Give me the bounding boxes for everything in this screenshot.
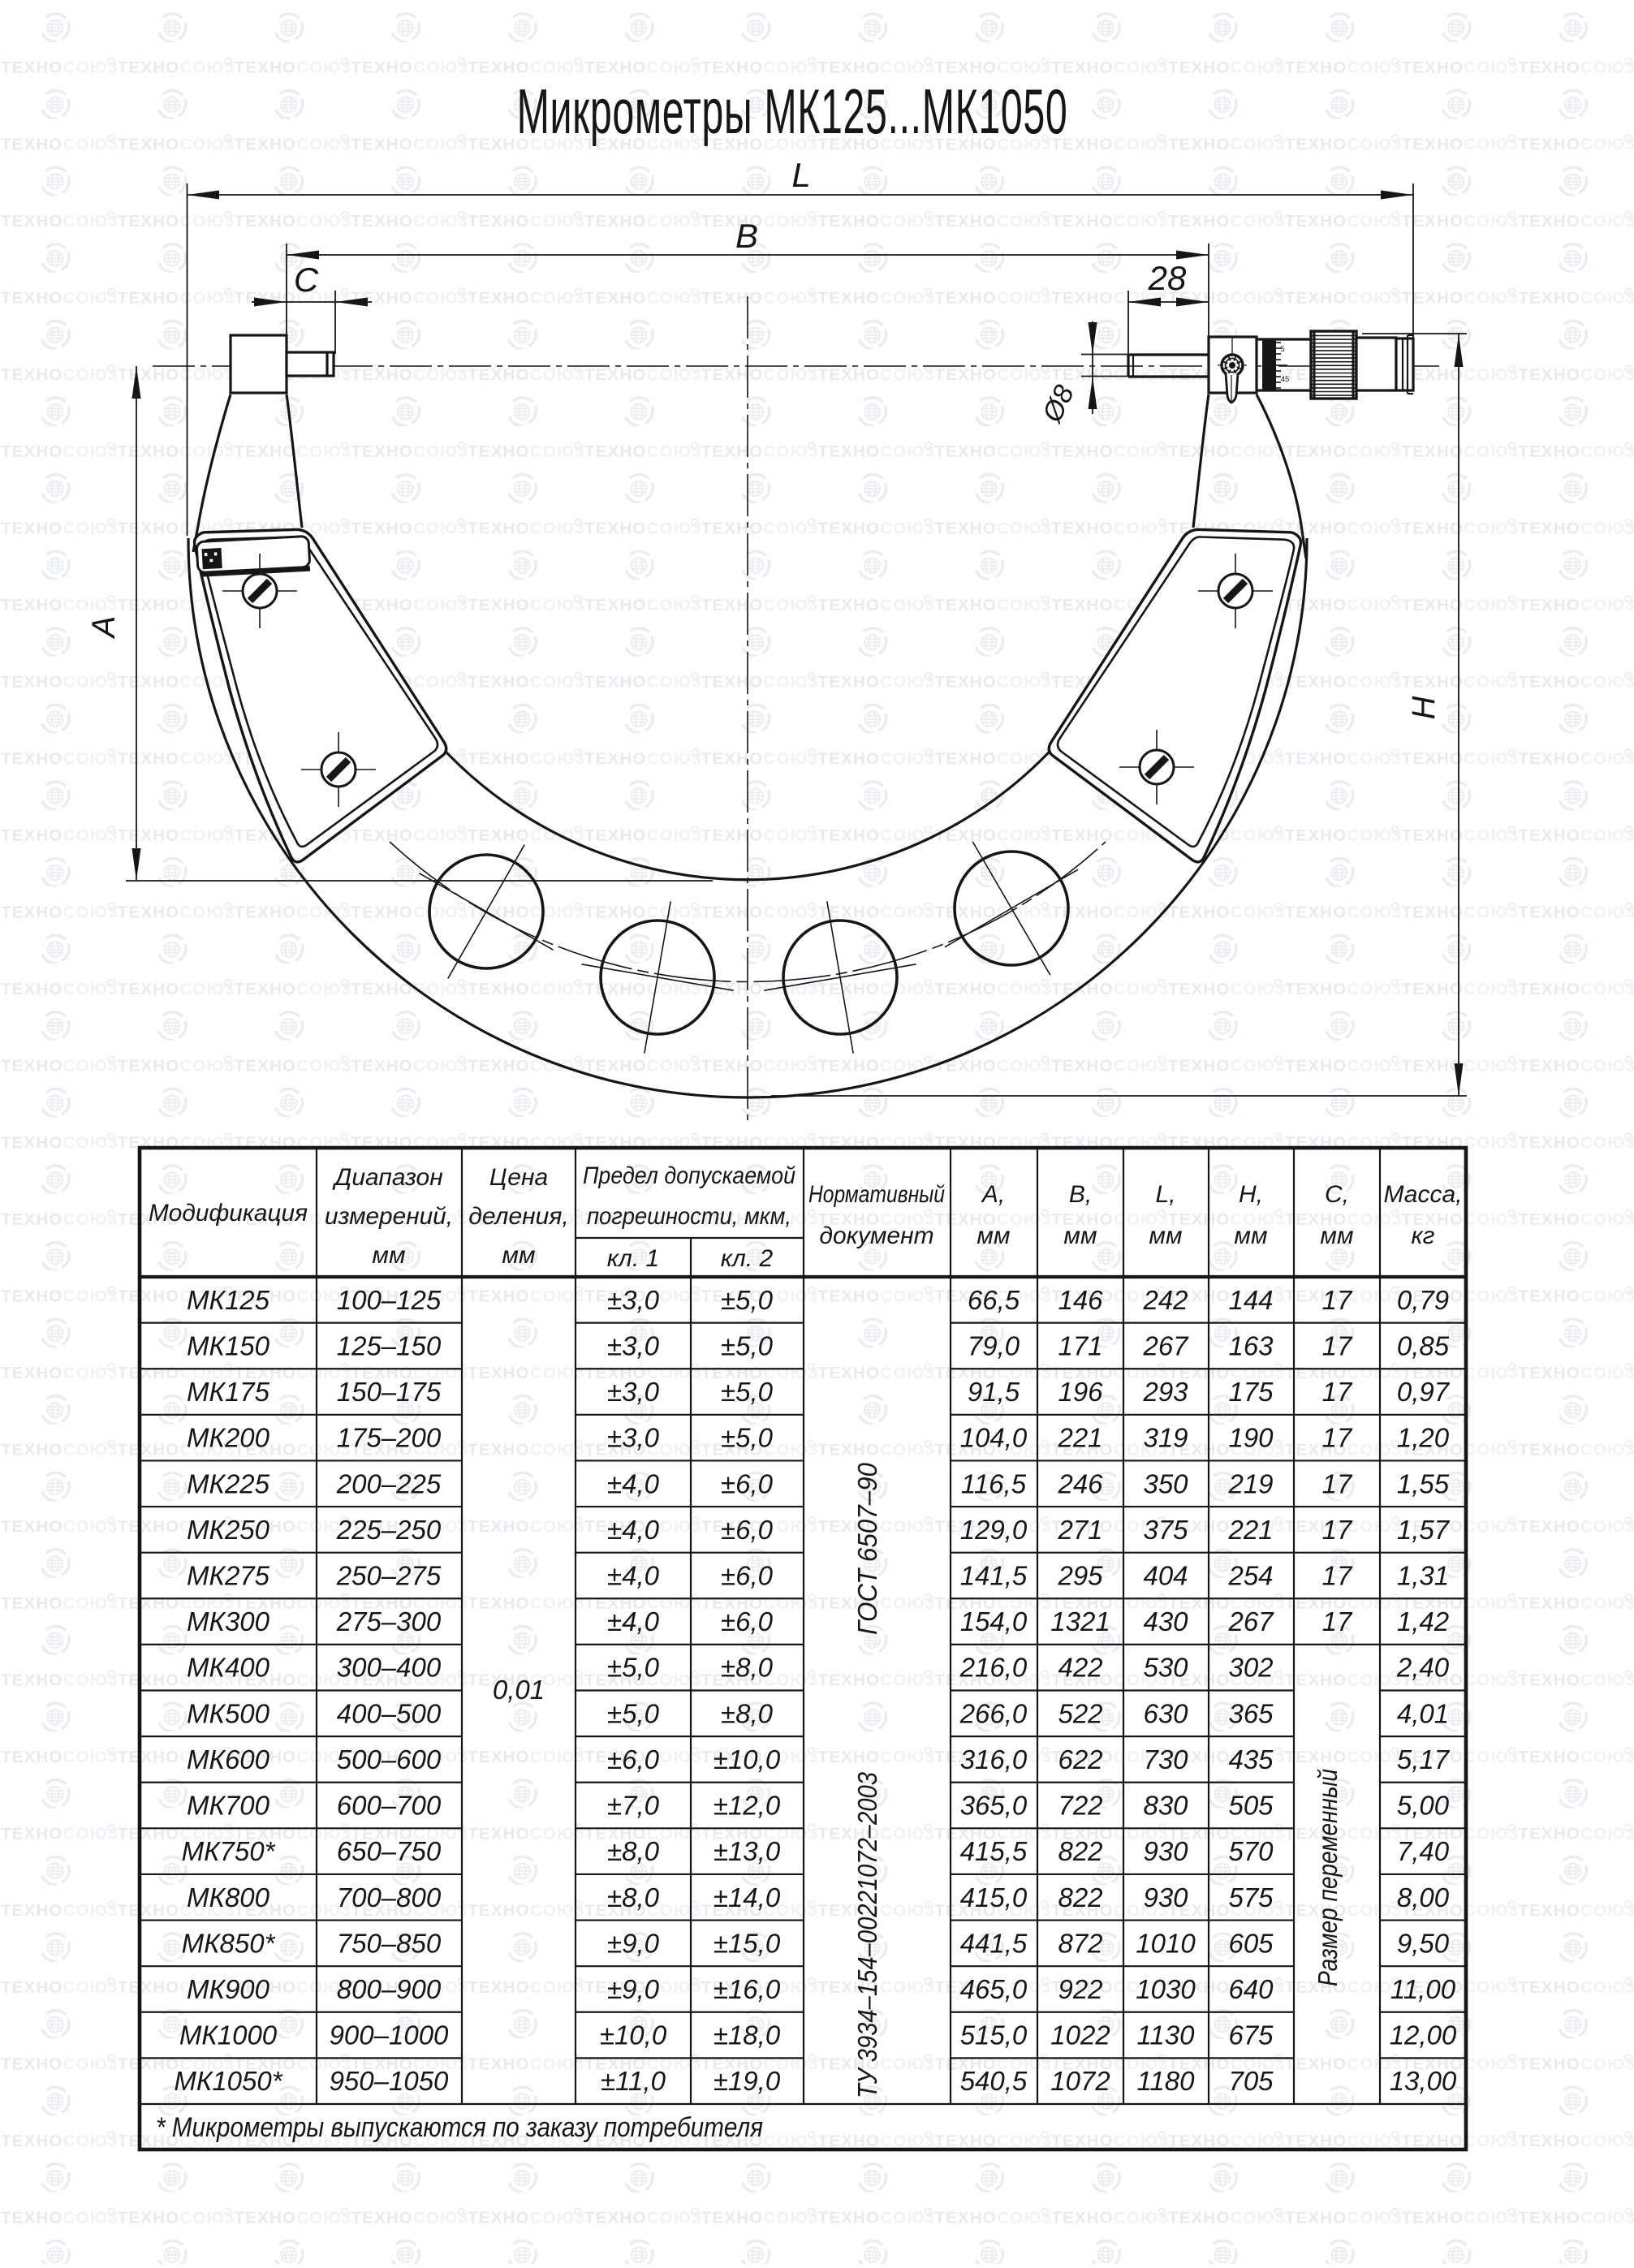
svg-text:ТУ 3934–154–00221072–2003: ТУ 3934–154–00221072–2003: [852, 1771, 882, 2098]
svg-text:293: 293: [1142, 1377, 1188, 1407]
svg-text:мм: мм: [1063, 1222, 1097, 1249]
svg-text:МК1000: МК1000: [179, 2020, 278, 2050]
svg-text:750–850: 750–850: [337, 1928, 442, 1958]
svg-text:530: 530: [1143, 1653, 1188, 1683]
svg-text:17: 17: [1322, 1515, 1353, 1545]
svg-text:±7,0: ±7,0: [607, 1791, 660, 1821]
svg-text:±3,0: ±3,0: [607, 1285, 660, 1315]
svg-text:±9,0: ±9,0: [607, 1974, 660, 2004]
svg-text:1072: 1072: [1050, 2066, 1110, 2096]
svg-text:575: 575: [1228, 1882, 1274, 1912]
svg-text:МК250: МК250: [187, 1515, 270, 1545]
svg-text:254: 254: [1227, 1560, 1273, 1590]
svg-text:1180: 1180: [1137, 2066, 1196, 2096]
svg-text:225–250: 225–250: [336, 1515, 442, 1545]
svg-text:144: 144: [1228, 1285, 1273, 1315]
svg-text:кг: кг: [1412, 1222, 1435, 1249]
svg-text:±3,0: ±3,0: [607, 1423, 660, 1453]
svg-text:МК275: МК275: [187, 1560, 270, 1590]
svg-text:мм: мм: [372, 1242, 405, 1269]
svg-text:28: 28: [1148, 259, 1187, 297]
svg-text:800–900: 800–900: [337, 1974, 442, 2004]
svg-text:Модификация: Модификация: [149, 1200, 308, 1227]
svg-text:МК400: МК400: [187, 1653, 270, 1683]
svg-text:415,5: 415,5: [960, 1836, 1028, 1866]
svg-text:±12,0: ±12,0: [714, 1791, 781, 1821]
svg-text:±9,0: ±9,0: [607, 1928, 660, 1958]
svg-text:мм: мм: [1149, 1222, 1182, 1249]
svg-text:640: 640: [1228, 1974, 1274, 2004]
svg-text:±3,0: ±3,0: [607, 1330, 660, 1360]
svg-text:630: 630: [1143, 1698, 1188, 1728]
svg-text:кл. 2: кл. 2: [721, 1245, 774, 1272]
svg-text:A: A: [86, 616, 122, 640]
svg-text:±5,0: ±5,0: [721, 1377, 774, 1407]
svg-text:1321: 1321: [1050, 1606, 1110, 1636]
svg-text:±5,0: ±5,0: [607, 1698, 660, 1728]
svg-text:±11,0: ±11,0: [601, 2066, 666, 2096]
svg-text:242: 242: [1142, 1285, 1188, 1315]
svg-text:17: 17: [1322, 1377, 1353, 1407]
svg-text:930: 930: [1143, 1836, 1188, 1866]
svg-text:441,5: 441,5: [960, 1928, 1028, 1958]
svg-text:605: 605: [1228, 1928, 1274, 1958]
svg-text:1130: 1130: [1137, 2020, 1196, 2050]
svg-text:1030: 1030: [1136, 1974, 1196, 2004]
svg-text:830: 830: [1143, 1791, 1188, 1821]
svg-text:МК900: МК900: [187, 1974, 270, 2004]
svg-text:5: 5: [1280, 345, 1284, 354]
svg-text:7,40: 7,40: [1397, 1836, 1450, 1866]
svg-text:930: 930: [1143, 1882, 1188, 1912]
svg-text:±4,0: ±4,0: [607, 1560, 660, 1590]
svg-text:430: 430: [1143, 1606, 1188, 1636]
svg-text:±8,0: ±8,0: [721, 1698, 774, 1728]
svg-text:404: 404: [1143, 1560, 1188, 1590]
svg-text:±8,0: ±8,0: [721, 1653, 774, 1683]
svg-text:600–700: 600–700: [337, 1791, 442, 1821]
svg-text:219: 219: [1227, 1468, 1273, 1498]
svg-text:400–500: 400–500: [337, 1698, 442, 1728]
svg-text:Микрометры МК125...МК1050: Микрометры МК125...МК1050: [517, 75, 1068, 147]
svg-text:12,00: 12,00: [1390, 2020, 1457, 2050]
svg-text:МК600: МК600: [187, 1744, 270, 1774]
svg-text:104,0: 104,0: [960, 1423, 1028, 1453]
svg-text:±15,0: ±15,0: [714, 1928, 781, 1958]
svg-text:B: B: [735, 217, 758, 255]
svg-text:МК175: МК175: [187, 1377, 270, 1407]
svg-text:±4,0: ±4,0: [607, 1606, 660, 1636]
svg-text:Масса,: Масса,: [1383, 1181, 1462, 1208]
svg-text:H: H: [1406, 696, 1442, 719]
svg-text:МК150: МК150: [187, 1330, 270, 1360]
svg-text:±5,0: ±5,0: [721, 1423, 774, 1453]
svg-text:465,0: 465,0: [960, 1974, 1028, 2004]
svg-text:1010: 1010: [1136, 1928, 1196, 1958]
svg-text:422: 422: [1058, 1653, 1102, 1683]
svg-text:650–750: 650–750: [337, 1836, 442, 1866]
svg-text:872: 872: [1058, 1928, 1102, 1958]
svg-text:L,: L,: [1155, 1181, 1175, 1208]
svg-text:129,0: 129,0: [960, 1515, 1028, 1545]
svg-text:МК1050*: МК1050*: [174, 2066, 282, 2096]
svg-text:±18,0: ±18,0: [714, 2020, 781, 2050]
svg-text:8,00: 8,00: [1397, 1882, 1450, 1912]
svg-text:мм: мм: [1234, 1222, 1267, 1249]
svg-text:1,55: 1,55: [1397, 1468, 1450, 1498]
svg-text:100–125: 100–125: [337, 1285, 442, 1315]
svg-text:4,01: 4,01: [1397, 1698, 1449, 1728]
svg-text:0,79: 0,79: [1397, 1285, 1449, 1315]
svg-text:МК225: МК225: [187, 1468, 270, 1498]
svg-text:±3,0: ±3,0: [607, 1377, 660, 1407]
svg-text:2,40: 2,40: [1396, 1653, 1450, 1683]
svg-text:±16,0: ±16,0: [714, 1974, 781, 2004]
svg-text:705: 705: [1228, 2066, 1274, 2096]
svg-text:C: C: [294, 261, 319, 299]
svg-text:350: 350: [1143, 1468, 1188, 1498]
svg-text:* Микрометры выпускаются по за: * Микрометры выпускаются по заказу потре…: [156, 2112, 763, 2143]
svg-text:365: 365: [1228, 1698, 1274, 1728]
svg-text:163: 163: [1228, 1330, 1274, 1360]
svg-text:722: 722: [1058, 1791, 1102, 1821]
svg-text:мм: мм: [977, 1222, 1010, 1249]
svg-text:±5,0: ±5,0: [607, 1653, 660, 1683]
svg-text:319: 319: [1143, 1423, 1188, 1453]
svg-text:200–225: 200–225: [336, 1468, 442, 1498]
svg-text:415,0: 415,0: [960, 1882, 1028, 1912]
svg-text:±6,0: ±6,0: [721, 1515, 774, 1545]
svg-text:146: 146: [1058, 1285, 1103, 1315]
svg-text:17: 17: [1322, 1606, 1353, 1636]
svg-text:±4,0: ±4,0: [607, 1468, 660, 1498]
svg-text:±10,0: ±10,0: [714, 1744, 781, 1774]
svg-text:±6,0: ±6,0: [721, 1468, 774, 1498]
svg-text:246: 246: [1057, 1468, 1103, 1498]
svg-text:66,5: 66,5: [968, 1285, 1020, 1315]
svg-text:Н,: Н,: [1239, 1181, 1263, 1208]
svg-text:125–150: 125–150: [337, 1330, 442, 1360]
svg-text:175: 175: [1228, 1377, 1274, 1407]
svg-text:±13,0: ±13,0: [714, 1836, 781, 1866]
svg-text:822: 822: [1058, 1882, 1102, 1912]
svg-text:91,5: 91,5: [968, 1377, 1020, 1407]
svg-text:С,: С,: [1325, 1181, 1349, 1208]
svg-text:267: 267: [1227, 1606, 1274, 1636]
svg-text:Цена: Цена: [489, 1164, 548, 1191]
svg-text:0,85: 0,85: [1397, 1330, 1450, 1360]
svg-text:±5,0: ±5,0: [721, 1285, 774, 1315]
svg-text:570: 570: [1228, 1836, 1274, 1866]
svg-text:540,5: 540,5: [960, 2066, 1028, 2096]
svg-text:250–275: 250–275: [336, 1560, 442, 1590]
svg-text:0,01: 0,01: [493, 1675, 545, 1705]
svg-text:1,42: 1,42: [1397, 1606, 1449, 1636]
svg-text:1,31: 1,31: [1397, 1560, 1449, 1590]
svg-text:±5,0: ±5,0: [721, 1330, 774, 1360]
svg-text:МК500: МК500: [187, 1698, 270, 1728]
svg-text:±8,0: ±8,0: [607, 1882, 660, 1912]
svg-text:216,0: 216,0: [959, 1653, 1028, 1683]
svg-text:0,97: 0,97: [1397, 1377, 1451, 1407]
svg-text:А,: А,: [981, 1181, 1005, 1208]
svg-text:171: 171: [1058, 1330, 1102, 1360]
svg-text:МК750*: МК750*: [182, 1836, 276, 1866]
svg-text:302: 302: [1228, 1653, 1273, 1683]
svg-text:L: L: [791, 156, 810, 194]
svg-text:погрешности, мкм,: погрешности, мкм,: [587, 1203, 791, 1230]
svg-text:документ: документ: [819, 1222, 933, 1249]
svg-text:730: 730: [1143, 1744, 1188, 1774]
svg-text:17: 17: [1322, 1423, 1353, 1453]
svg-text:1,57: 1,57: [1397, 1515, 1451, 1545]
svg-text:±6,0: ±6,0: [721, 1606, 774, 1636]
svg-text:МК200: МК200: [187, 1423, 270, 1453]
svg-text:мм: мм: [1320, 1222, 1353, 1249]
svg-text:622: 622: [1058, 1744, 1102, 1774]
svg-text:9,50: 9,50: [1397, 1928, 1450, 1958]
svg-text:±8,0: ±8,0: [607, 1836, 660, 1866]
svg-text:435: 435: [1228, 1744, 1274, 1774]
svg-text:5,17: 5,17: [1397, 1744, 1451, 1774]
svg-text:950–1050: 950–1050: [330, 2066, 449, 2096]
svg-text:17: 17: [1322, 1560, 1353, 1590]
svg-text:17: 17: [1322, 1468, 1353, 1498]
svg-text:5,00: 5,00: [1397, 1791, 1450, 1821]
svg-text:13,00: 13,00: [1390, 2066, 1457, 2096]
svg-text:221: 221: [1057, 1423, 1102, 1453]
svg-text:154,0: 154,0: [960, 1606, 1028, 1636]
svg-text:±6,0: ±6,0: [721, 1560, 774, 1590]
svg-text:316,0: 316,0: [960, 1744, 1028, 1774]
svg-text:141,5: 141,5: [960, 1560, 1028, 1590]
svg-text:271: 271: [1057, 1515, 1102, 1545]
svg-text:17: 17: [1322, 1330, 1353, 1360]
svg-text:79,0: 79,0: [968, 1330, 1020, 1360]
svg-text:МК800: МК800: [187, 1882, 270, 1912]
svg-text:267: 267: [1142, 1330, 1189, 1360]
svg-text:1022: 1022: [1050, 2020, 1110, 2050]
svg-text:500–600: 500–600: [337, 1744, 442, 1774]
svg-text:МК850*: МК850*: [182, 1928, 276, 1958]
svg-text:МК125: МК125: [187, 1285, 270, 1315]
svg-text:мм: мм: [502, 1242, 535, 1269]
svg-text:45: 45: [1281, 375, 1290, 384]
svg-text:175–200: 175–200: [337, 1423, 442, 1453]
svg-text:150–175: 150–175: [337, 1377, 442, 1407]
svg-text:922: 922: [1058, 1974, 1102, 2004]
svg-text:±14,0: ±14,0: [714, 1882, 781, 1912]
svg-text:В,: В,: [1069, 1181, 1092, 1208]
svg-text:МК700: МК700: [187, 1791, 270, 1821]
svg-text:Предел допускаемой: Предел допускаемой: [583, 1162, 795, 1189]
svg-text:221: 221: [1227, 1515, 1273, 1545]
svg-text:900–1000: 900–1000: [330, 2020, 449, 2050]
svg-text:266,0: 266,0: [959, 1698, 1028, 1728]
svg-text:±19,0: ±19,0: [714, 2066, 781, 2096]
svg-text:375: 375: [1143, 1515, 1188, 1545]
svg-text:измерений,: измерений,: [325, 1203, 453, 1230]
svg-text:505: 505: [1228, 1791, 1274, 1821]
svg-text:515,0: 515,0: [960, 2020, 1028, 2050]
svg-text:196: 196: [1058, 1377, 1103, 1407]
svg-text:295: 295: [1057, 1560, 1103, 1590]
svg-text:365,0: 365,0: [960, 1791, 1028, 1821]
svg-text:МК300: МК300: [187, 1606, 270, 1636]
svg-text:Диапазон: Диапазон: [332, 1164, 443, 1191]
svg-text:кл. 1: кл. 1: [607, 1245, 659, 1272]
svg-text:±6,0: ±6,0: [607, 1744, 660, 1774]
svg-text:17: 17: [1322, 1285, 1353, 1315]
svg-text:675: 675: [1228, 2020, 1274, 2050]
svg-text:300–400: 300–400: [337, 1653, 442, 1683]
svg-text:ГОСТ 6507–90: ГОСТ 6507–90: [852, 1462, 882, 1635]
svg-text:1,20: 1,20: [1397, 1423, 1450, 1453]
svg-text:деления,: деления,: [468, 1203, 568, 1230]
svg-text:522: 522: [1058, 1698, 1102, 1728]
svg-text:275–300: 275–300: [336, 1606, 442, 1636]
svg-text:700–800: 700–800: [337, 1882, 442, 1912]
svg-text:±10,0: ±10,0: [600, 2020, 667, 2050]
svg-text:190: 190: [1228, 1423, 1274, 1453]
svg-text:Нормативный: Нормативный: [808, 1181, 945, 1208]
svg-text:116,5: 116,5: [961, 1468, 1027, 1498]
svg-text:11,00: 11,00: [1390, 1974, 1456, 2004]
svg-text:±4,0: ±4,0: [607, 1515, 660, 1545]
svg-text:Размер переменный: Размер переменный: [1313, 1769, 1343, 1986]
svg-text:822: 822: [1058, 1836, 1102, 1866]
